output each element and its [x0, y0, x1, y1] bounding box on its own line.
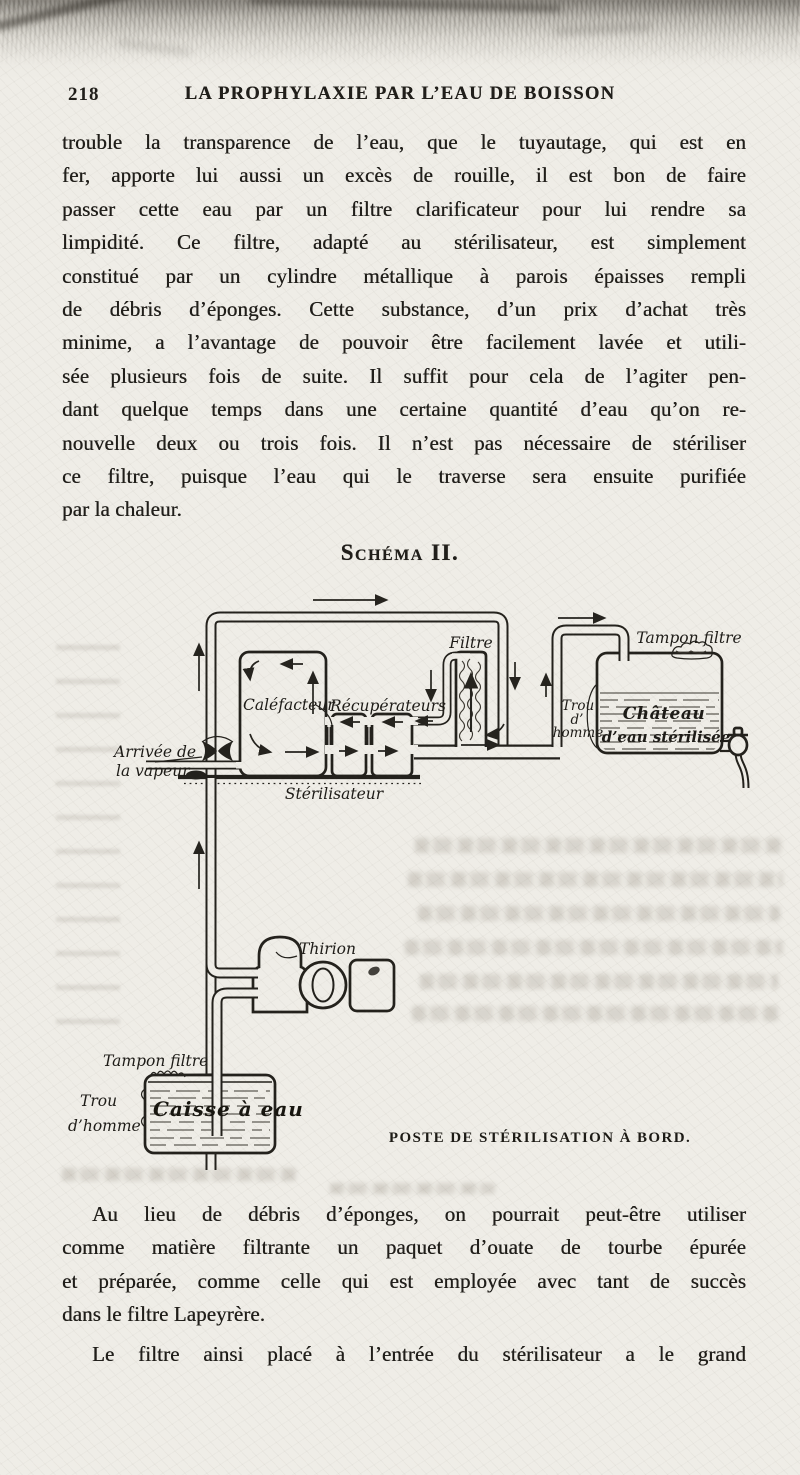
chateau-label: d’eau stérilisée [602, 728, 731, 746]
paragraph-2: Au lieu de débris d’éponges, on pourrait… [62, 1198, 746, 1332]
schema-heading: Schéma II. [0, 540, 800, 566]
text-line: dans le filtre Lapeyrère. [62, 1298, 746, 1331]
text-line: par la chaleur. [62, 493, 746, 526]
recuperateur-box [372, 714, 412, 776]
text-line: Le filtre ainsi placé à l’entrée du stér… [62, 1338, 746, 1371]
scan-edge-noise [0, 0, 800, 80]
running-title: LA PROPHYLAXIE PAR L’EAU DE BOISSON [0, 84, 800, 105]
trou-homme-top-label: homme [553, 725, 603, 741]
diagram-labels: Arrivée de la vapeur Caléfacteur Récupér… [68, 629, 742, 1146]
text-line: Au lieu de débris d’éponges, on pourrait… [62, 1198, 746, 1231]
text-line: dant quelque temps dans une certaine qua… [62, 393, 746, 426]
thirion-label: Thirion [299, 940, 356, 958]
recuperateur-box [332, 714, 366, 776]
text-line: passer cette eau par un filtre clarifica… [62, 193, 746, 226]
paragraph-1: trouble la transparence de l’eau, que le… [62, 126, 746, 527]
trou-homme-bottom-label: Trou [80, 1092, 117, 1110]
trou-homme-bottom-label: d’homme [68, 1117, 141, 1135]
scan-streak [0, 0, 144, 33]
bleed-through-artifact [330, 1183, 495, 1194]
text-line: ce filtre, puisque l’eau qui le traverse… [62, 460, 746, 493]
scan-streak [118, 40, 190, 55]
book-page: 218 LA PROPHYLAXIE PAR L’EAU DE BOISSON … [0, 0, 800, 1475]
calefacteur-label: Caléfacteur [243, 696, 336, 714]
page-header: 218 LA PROPHYLAXIE PAR L’EAU DE BOISSON [0, 84, 800, 108]
filtre-label: Filtre [448, 634, 492, 652]
text-line: sée plusieurs fois de suite. Il suffit p… [62, 360, 746, 393]
text-line: nouvelle deux ou trois fois. Il n’est pa… [62, 427, 746, 460]
text-line: minime, a l’avantage de pouvoir être fac… [62, 326, 746, 359]
caisse-a-eau-label: Caisse à eau [153, 1097, 304, 1121]
text-line: constitué par un cylindre métallique à p… [62, 260, 746, 293]
text-line: et préparée, comme celle qui est employé… [62, 1265, 746, 1298]
text-line: comme matière filtrante un paquet d’ouat… [62, 1231, 746, 1264]
recuperateurs-label: Récupérateurs [329, 697, 446, 715]
text-line: trouble la transparence de l’eau, que le… [62, 126, 746, 159]
text-line: fer, apporte lui aussi un excès de rouil… [62, 159, 746, 192]
arrivee-vapeur-label: la vapeur [116, 762, 191, 780]
scan-streak [250, 0, 560, 12]
chateau-label: Château [623, 704, 705, 724]
tampon-filtre-bottom-label: Tampon filtre [103, 1052, 208, 1070]
paragraph-3: Le filtre ainsi placé à l’entrée du stér… [62, 1338, 746, 1371]
sterilisateur-label: Stérilisateur [285, 785, 385, 803]
tampon-filtre-top-label: Tampon filtre [636, 629, 741, 647]
scan-streak [555, 25, 650, 35]
page-number: 218 [68, 84, 100, 106]
diagram-caption: POSTE DE STÉRILISATION À BORD. [389, 1129, 691, 1146]
filter-unit [452, 652, 486, 747]
text-line: limpidité. Ce filtre, adapté au stérilis… [62, 226, 746, 259]
sterilization-diagram: Arrivée de la vapeur Caléfacteur Récupér… [0, 585, 800, 1170]
text-line: de débris d’éponges. Cette substance, d’… [62, 293, 746, 326]
arrivee-vapeur-label: Arrivée de [112, 743, 196, 761]
